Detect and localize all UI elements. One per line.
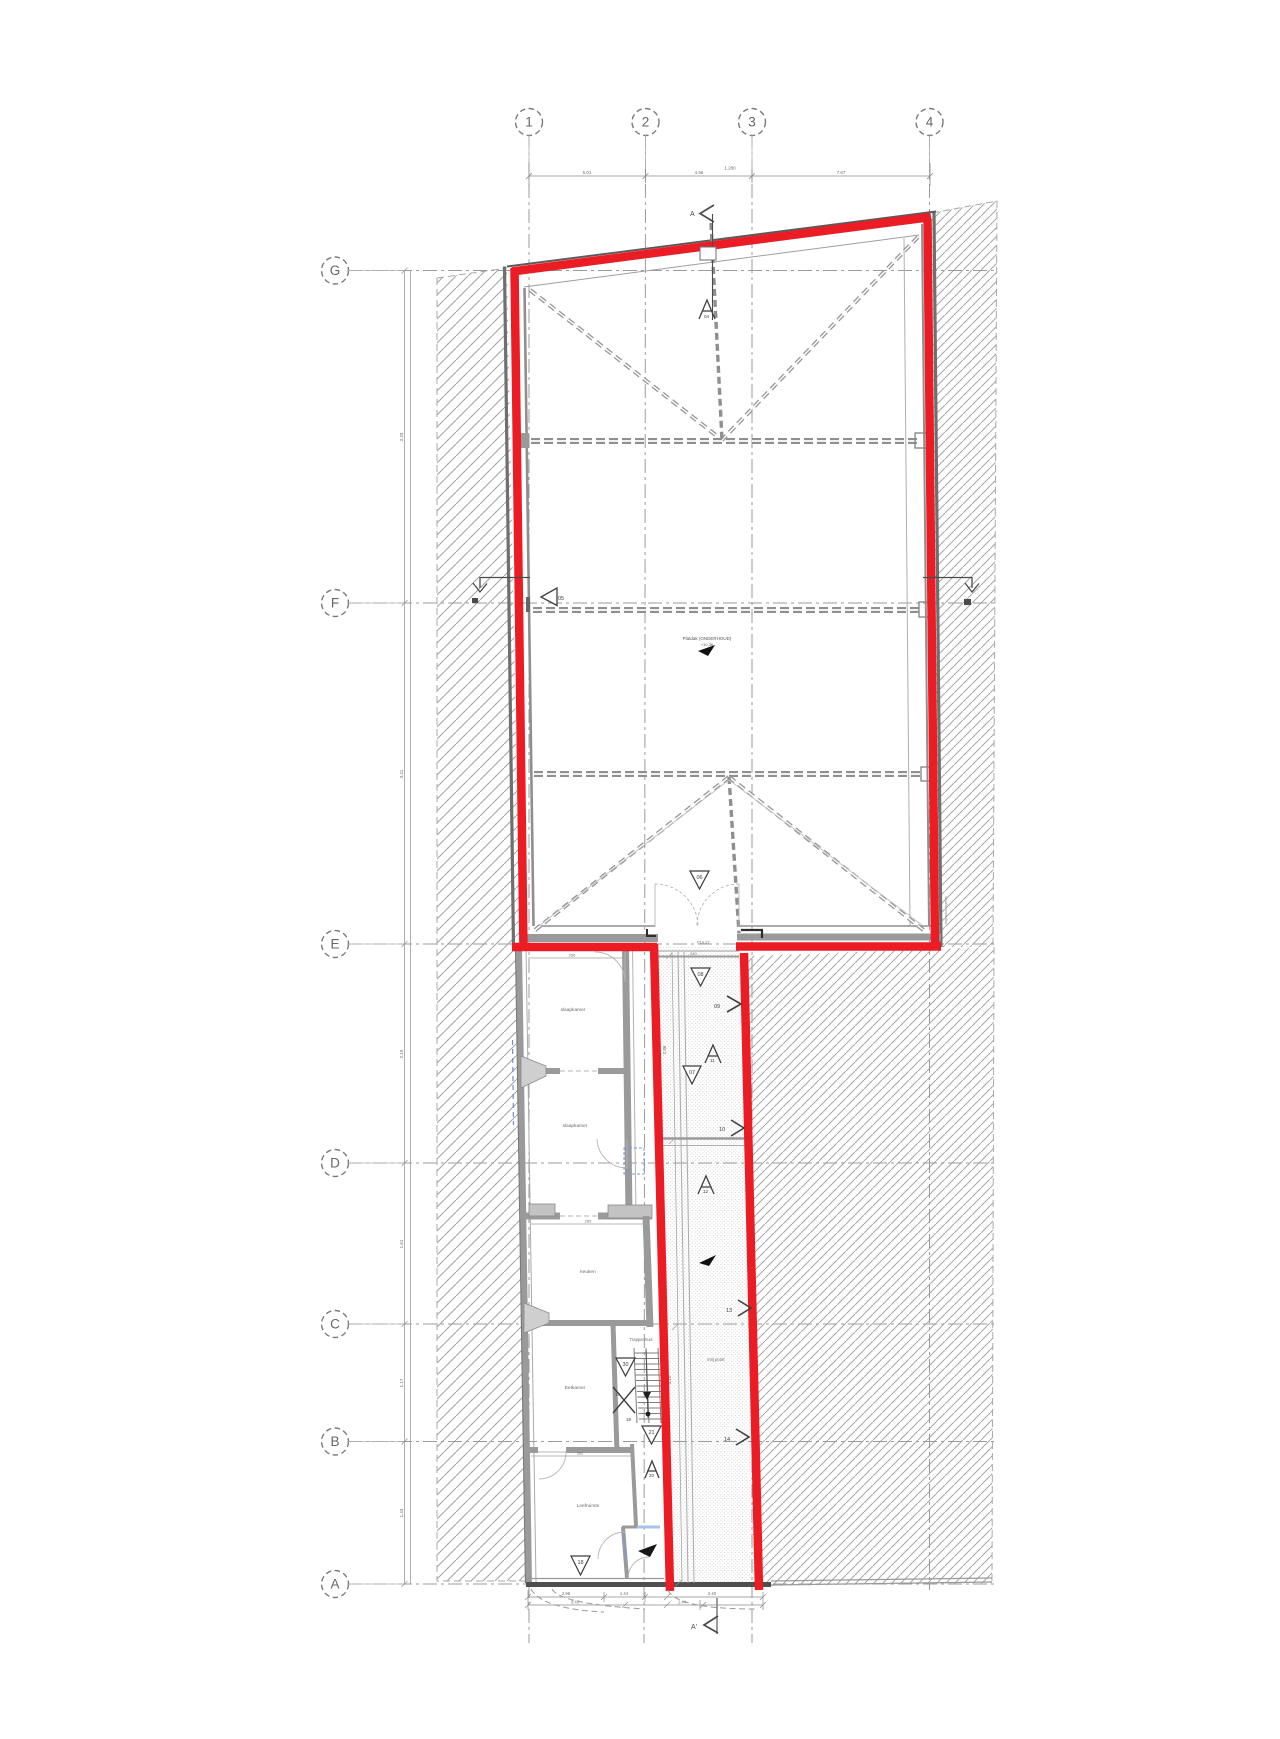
svg-text:1.61: 1.61 xyxy=(399,1239,404,1248)
svg-text:302: 302 xyxy=(577,1451,584,1456)
svg-text:3.41: 3.41 xyxy=(399,769,404,778)
svg-text:Trappenhuis: Trappenhuis xyxy=(629,1337,652,1342)
svg-text:04: 04 xyxy=(704,314,710,319)
svg-text:F: F xyxy=(331,596,339,611)
svg-text:Platdak (ONDERHOUD): Platdak (ONDERHOUD) xyxy=(683,636,732,641)
svg-text:06: 06 xyxy=(696,875,702,881)
svg-text:13: 13 xyxy=(726,1308,732,1314)
svg-text:slaapkamer: slaapkamer xyxy=(563,1123,588,1129)
svg-text:2.19: 2.19 xyxy=(399,1049,404,1058)
svg-text:Leefruimte: Leefruimte xyxy=(577,1503,600,1509)
svg-text:1.43: 1.43 xyxy=(399,1508,404,1517)
svg-text:09: 09 xyxy=(714,1004,720,1010)
svg-text:10: 10 xyxy=(719,1127,725,1133)
svg-text:2.98: 2.98 xyxy=(562,1591,571,1596)
svg-text:5.01: 5.01 xyxy=(583,170,592,175)
svg-text:Eetkamer: Eetkamer xyxy=(565,1385,586,1391)
svg-text:20: 20 xyxy=(649,1473,655,1478)
svg-text:4: 4 xyxy=(926,115,934,130)
svg-text:2.40: 2.40 xyxy=(708,1591,717,1596)
svg-text:12: 12 xyxy=(703,1189,709,1194)
svg-text:11: 11 xyxy=(710,1058,715,1063)
svg-text:1.17: 1.17 xyxy=(399,1378,404,1387)
svg-text:P10.27: P10.27 xyxy=(697,940,710,945)
svg-text:G: G xyxy=(330,263,341,278)
svg-text:7.67: 7.67 xyxy=(837,170,846,175)
svg-text:1.44: 1.44 xyxy=(620,1591,629,1596)
svg-text:eigendomsgrens: eigendomsgrens xyxy=(944,896,948,924)
svg-text:2.86: 2.86 xyxy=(662,1045,667,1054)
svg-text:18: 18 xyxy=(577,1560,583,1566)
svg-text:1.280: 1.280 xyxy=(724,166,736,171)
svg-text:E: E xyxy=(330,937,339,952)
svg-text:07: 07 xyxy=(689,1070,695,1076)
svg-text:265: 265 xyxy=(585,1219,592,1224)
svg-text:A: A xyxy=(330,1577,339,1592)
svg-text:19: 19 xyxy=(626,1417,632,1422)
svg-text:256: 256 xyxy=(569,953,576,958)
svg-text:B: B xyxy=(330,1434,339,1449)
svg-text:inrij poort: inrij poort xyxy=(707,1357,725,1362)
svg-text:3.33: 3.33 xyxy=(399,432,404,441)
svg-text:4.56: 4.56 xyxy=(695,170,704,175)
svg-text:slaapkamer: slaapkamer xyxy=(561,1007,586,1013)
svg-text:240: 240 xyxy=(690,951,697,956)
svg-text:keuken: keuken xyxy=(580,1269,596,1275)
svg-text:2: 2 xyxy=(642,115,650,130)
svg-text:1: 1 xyxy=(525,115,533,130)
svg-text:17: 17 xyxy=(615,1392,621,1397)
svg-text:30: 30 xyxy=(622,1362,628,1368)
svg-text:14: 14 xyxy=(724,1437,730,1443)
svg-text:A: A xyxy=(690,211,695,218)
svg-text:A': A' xyxy=(691,1624,697,1631)
svg-text:05: 05 xyxy=(558,596,564,602)
svg-text:C: C xyxy=(330,1317,340,1332)
svg-text:21: 21 xyxy=(648,1430,654,1436)
svg-text:3: 3 xyxy=(748,115,756,130)
svg-text:D: D xyxy=(330,1156,340,1171)
svg-text:08: 08 xyxy=(697,972,703,978)
